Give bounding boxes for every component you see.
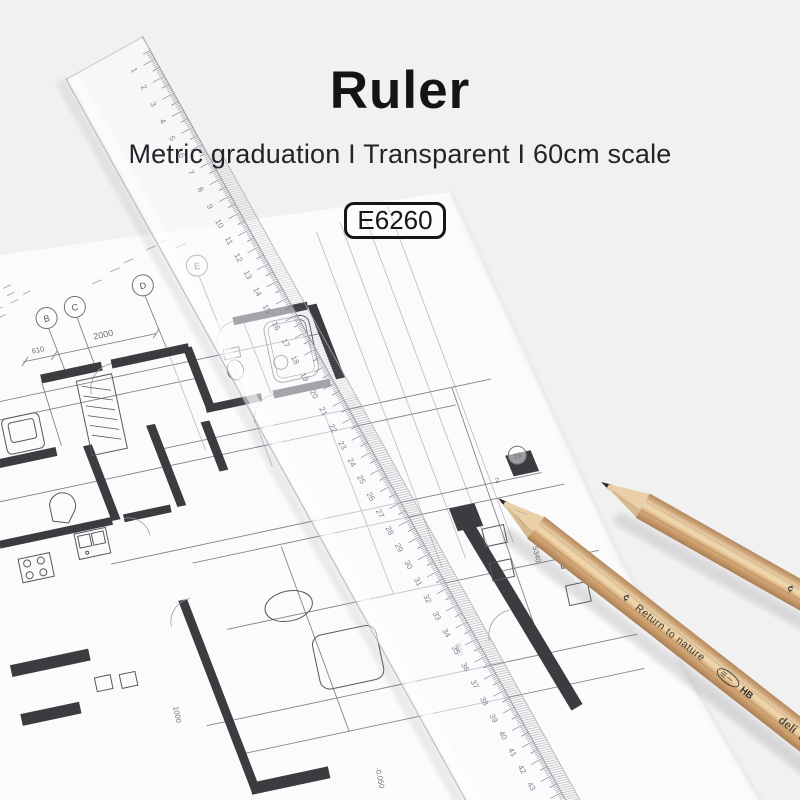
- text-overlay: Ruler Metric graduation I Transparent I …: [0, 0, 800, 800]
- product-photo: 610 2000 B C D E: [0, 0, 800, 800]
- page-title: Ruler: [0, 60, 800, 121]
- model-badge: E6260: [344, 202, 446, 239]
- page-subtitle: Metric graduation I Transparent I 60cm s…: [0, 139, 800, 170]
